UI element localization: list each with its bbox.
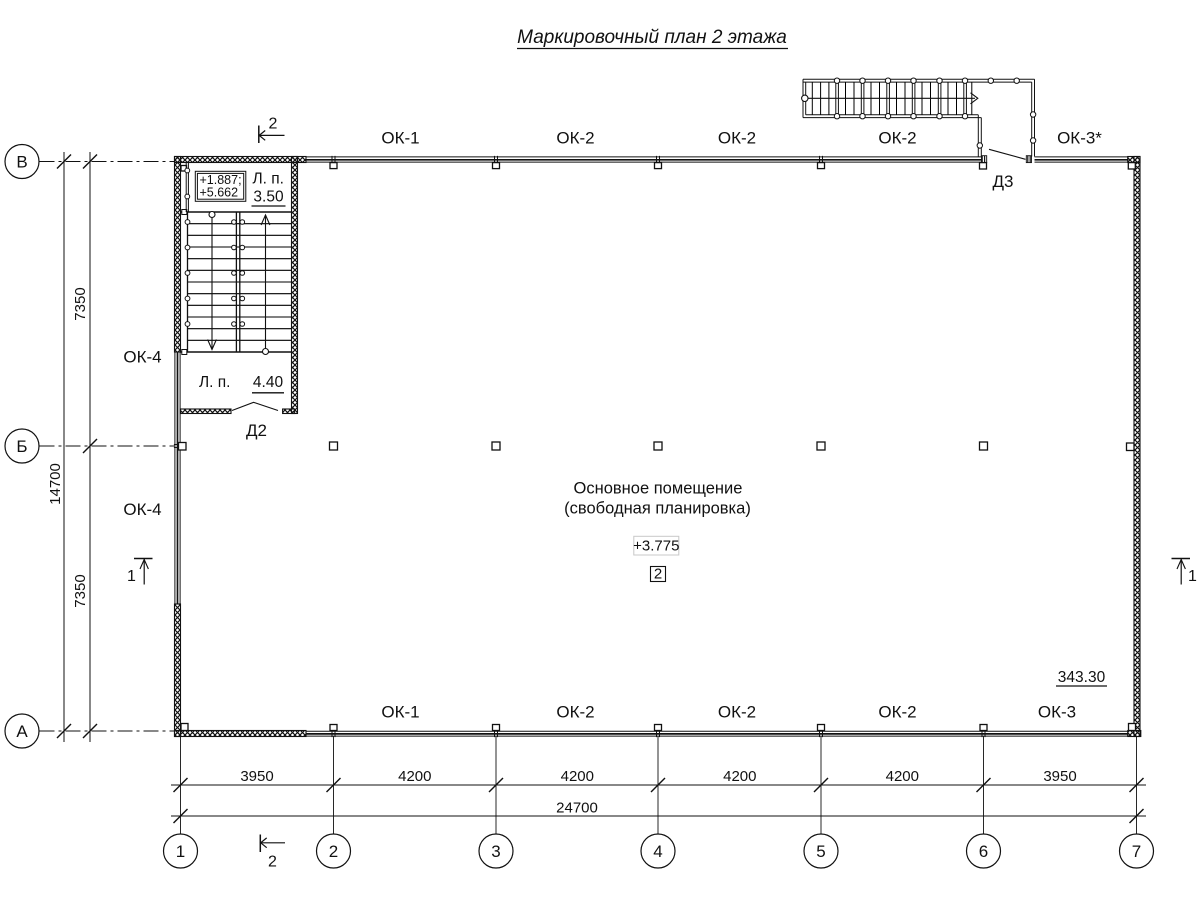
svg-text:4: 4 bbox=[653, 842, 662, 861]
svg-text:2: 2 bbox=[268, 854, 277, 871]
svg-text:Д3: Д3 bbox=[993, 172, 1014, 191]
svg-text:3950: 3950 bbox=[1043, 768, 1076, 785]
svg-text:4200: 4200 bbox=[723, 768, 756, 785]
svg-text:+5.662: +5.662 bbox=[200, 186, 239, 200]
svg-text:7350: 7350 bbox=[72, 287, 89, 320]
svg-text:1: 1 bbox=[127, 568, 136, 585]
svg-text:Л. п.: Л. п. bbox=[199, 374, 230, 391]
svg-text:ОК-2: ОК-2 bbox=[718, 129, 756, 148]
svg-text:ОК-2: ОК-2 bbox=[556, 703, 594, 722]
svg-text:7: 7 bbox=[1132, 842, 1141, 861]
svg-text:ОК-1: ОК-1 bbox=[381, 703, 419, 722]
svg-text:ОК-2: ОК-2 bbox=[718, 703, 756, 722]
svg-text:А: А bbox=[16, 722, 28, 741]
svg-text:+3.775: +3.775 bbox=[633, 538, 679, 555]
svg-text:4.40: 4.40 bbox=[253, 374, 284, 391]
svg-text:ОК-3*: ОК-3* bbox=[1057, 129, 1102, 148]
svg-text:1: 1 bbox=[176, 842, 185, 861]
svg-text:Б: Б bbox=[16, 437, 27, 456]
svg-text:ОК-2: ОК-2 bbox=[878, 129, 916, 148]
svg-text:ОК-4: ОК-4 bbox=[123, 500, 161, 519]
svg-text:2: 2 bbox=[654, 566, 662, 583]
svg-text:В: В bbox=[16, 153, 27, 172]
svg-text:7350: 7350 bbox=[72, 574, 89, 607]
svg-text:ОК-4: ОК-4 bbox=[123, 348, 161, 367]
svg-text:2: 2 bbox=[329, 842, 338, 861]
svg-text:1: 1 bbox=[1188, 568, 1197, 585]
svg-text:2: 2 bbox=[268, 116, 277, 133]
svg-text:6: 6 bbox=[979, 842, 988, 861]
svg-text:24700: 24700 bbox=[556, 800, 598, 817]
svg-text:3.50: 3.50 bbox=[253, 189, 284, 206]
svg-text:Д2: Д2 bbox=[246, 421, 267, 440]
svg-text:ОК-3: ОК-3 bbox=[1038, 703, 1076, 722]
svg-text:ОК-2: ОК-2 bbox=[878, 703, 916, 722]
svg-text:ОК-1: ОК-1 bbox=[381, 129, 419, 148]
svg-text:ОК-2: ОК-2 bbox=[556, 129, 594, 148]
svg-text:3: 3 bbox=[491, 842, 500, 861]
svg-text:5: 5 bbox=[816, 842, 825, 861]
svg-text:Л. п.: Л. п. bbox=[253, 171, 284, 188]
svg-text:14700: 14700 bbox=[47, 463, 64, 505]
svg-text:Маркировочный план 2 этажа: Маркировочный план 2 этажа bbox=[517, 27, 787, 48]
svg-text:Основное помещение: Основное помещение bbox=[574, 480, 743, 498]
svg-text:4200: 4200 bbox=[398, 768, 431, 785]
svg-text:4200: 4200 bbox=[561, 768, 594, 785]
svg-text:(свободная планировка): (свободная планировка) bbox=[564, 500, 751, 518]
svg-text:343.30: 343.30 bbox=[1058, 669, 1106, 686]
svg-text:4200: 4200 bbox=[886, 768, 919, 785]
svg-text:3950: 3950 bbox=[240, 768, 273, 785]
